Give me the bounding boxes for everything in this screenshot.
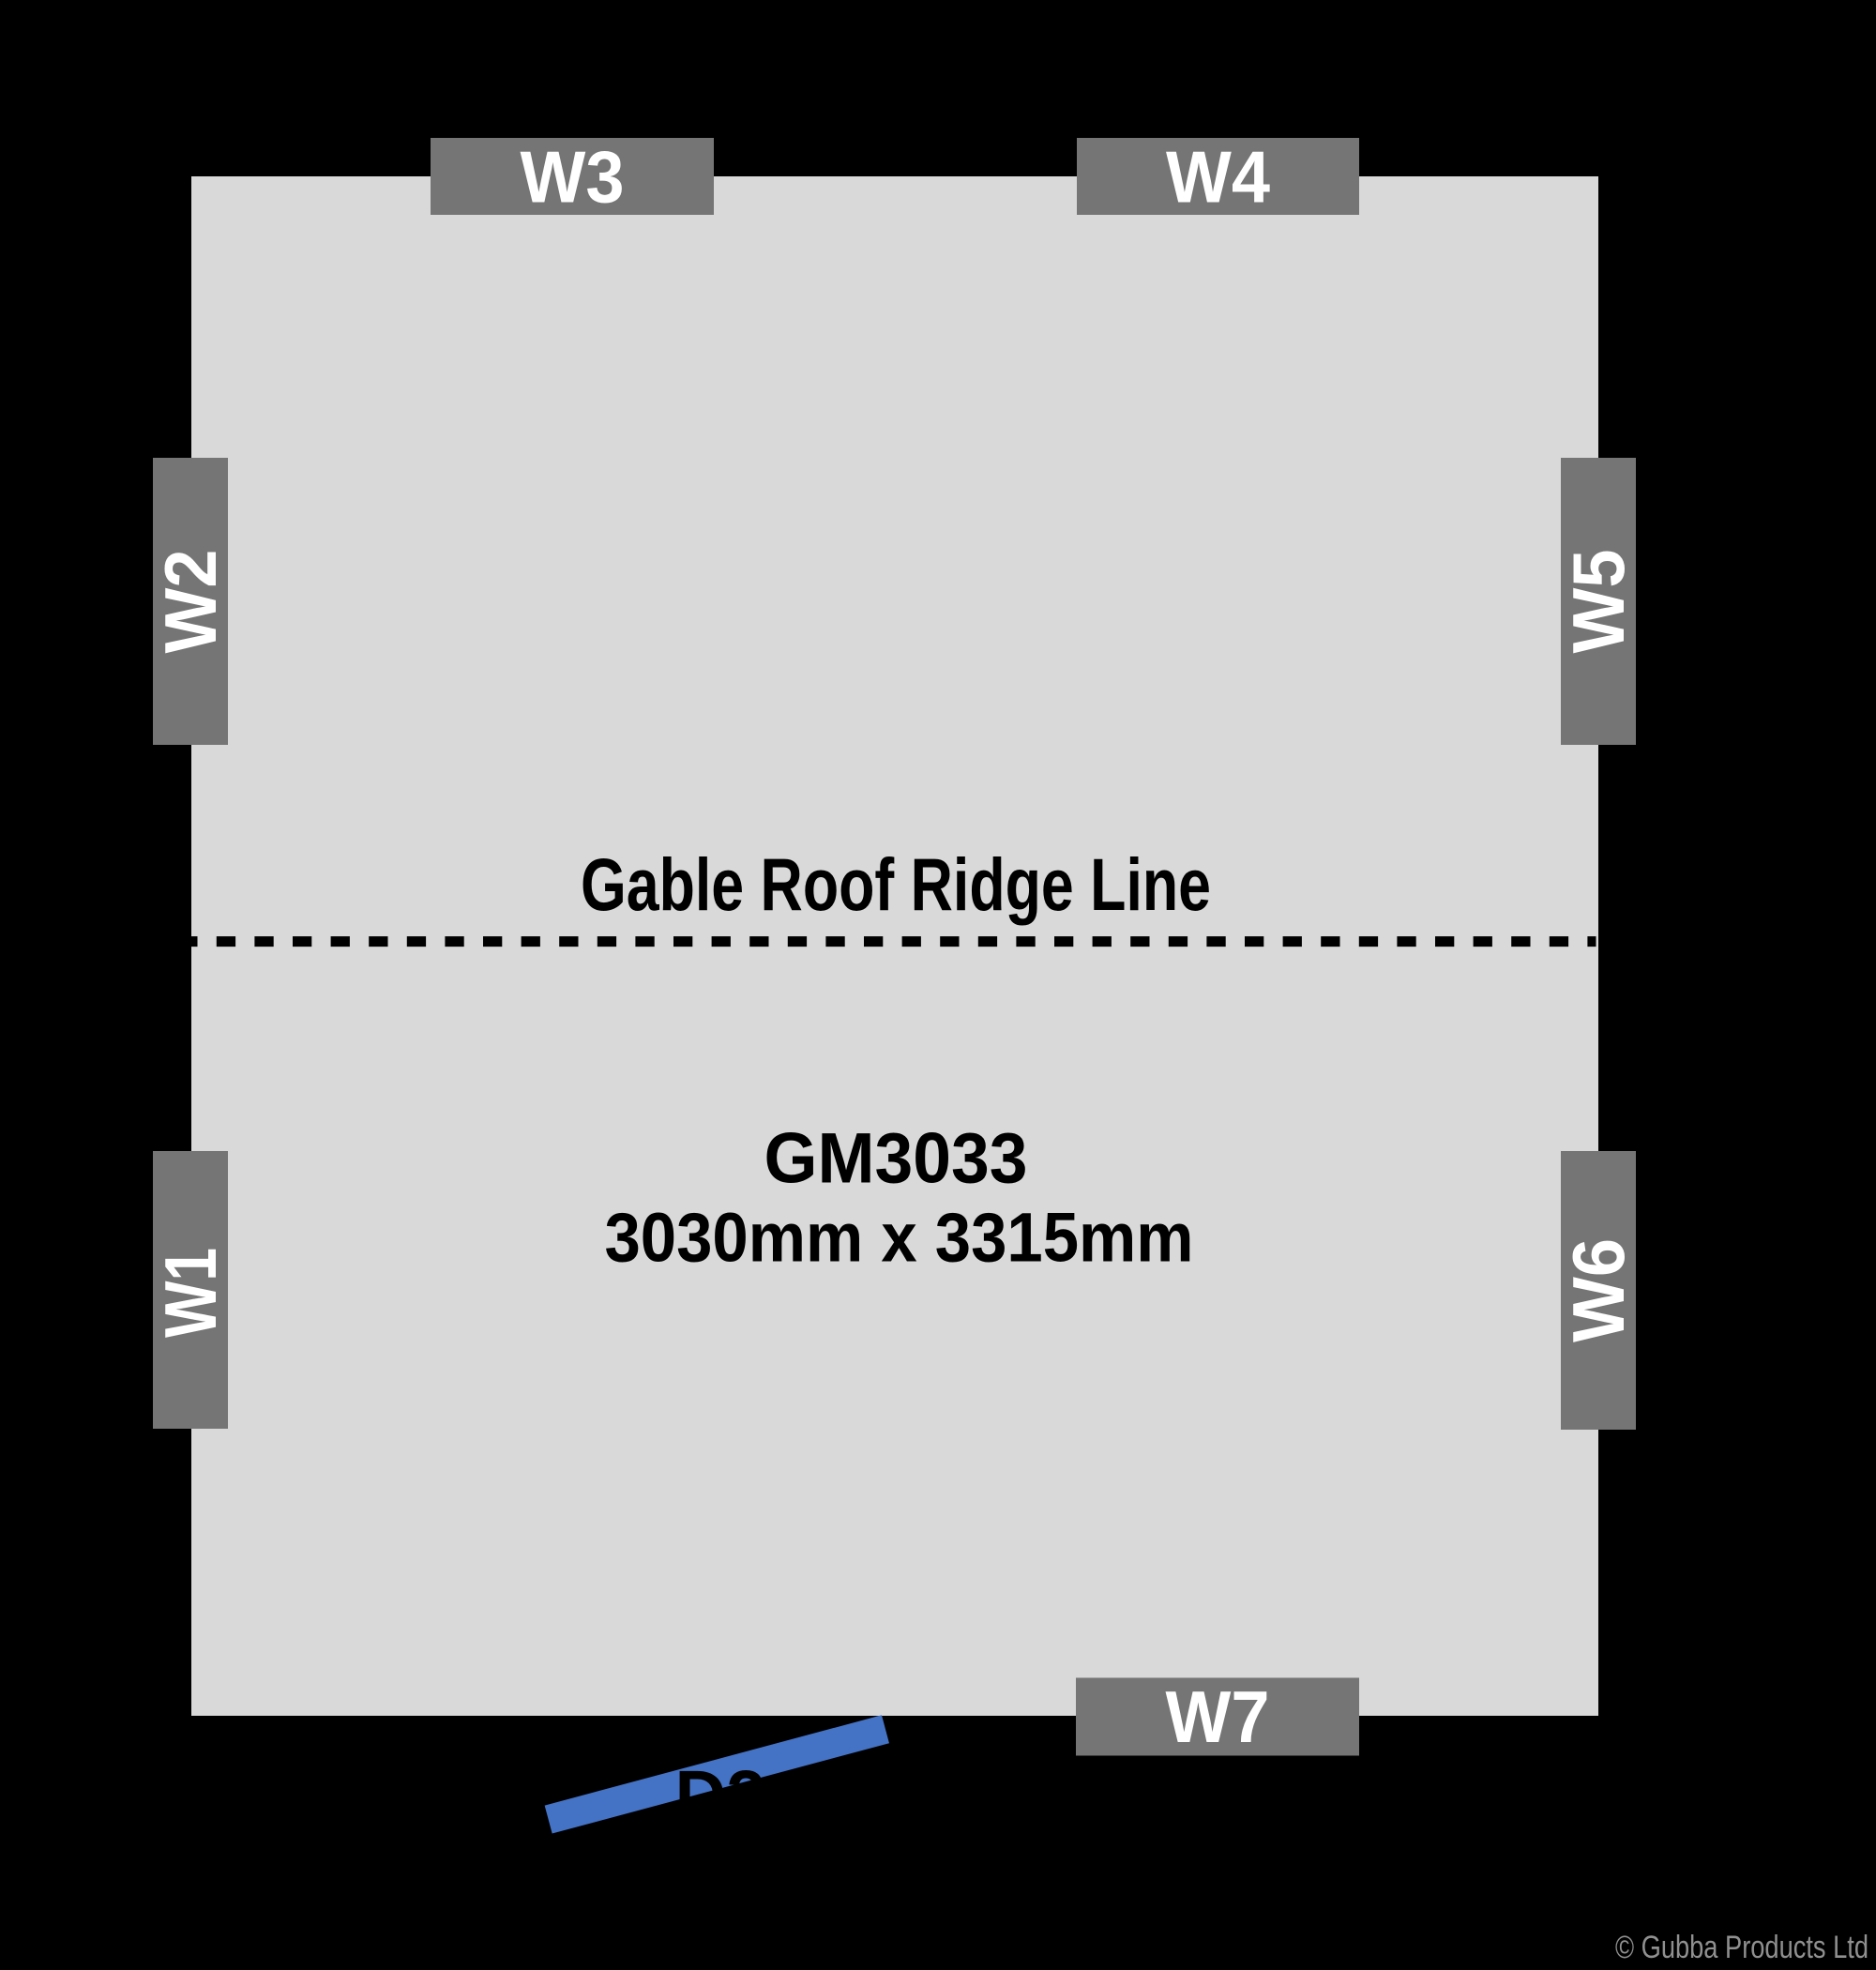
svg-text:W5: W5 [1557,550,1640,654]
svg-text:W7: W7 [1166,1675,1270,1758]
svg-text:© Gubba Products Ltd: © Gubba Products Ltd [1615,1930,1868,1965]
svg-text:W6: W6 [1557,1238,1640,1342]
svg-text:Gable Roof Ridge Line: Gable Roof Ridge Line [581,843,1211,926]
svg-text:W2: W2 [149,550,232,654]
svg-text:3030mm x 3315mm: 3030mm x 3315mm [605,1199,1194,1277]
svg-text:W3: W3 [521,135,625,218]
svg-text:W1: W1 [149,1248,232,1338]
svg-text:W4: W4 [1166,135,1270,218]
svg-text:GM3033: GM3033 [764,1119,1028,1199]
svg-text:D2: D2 [675,1755,766,1838]
